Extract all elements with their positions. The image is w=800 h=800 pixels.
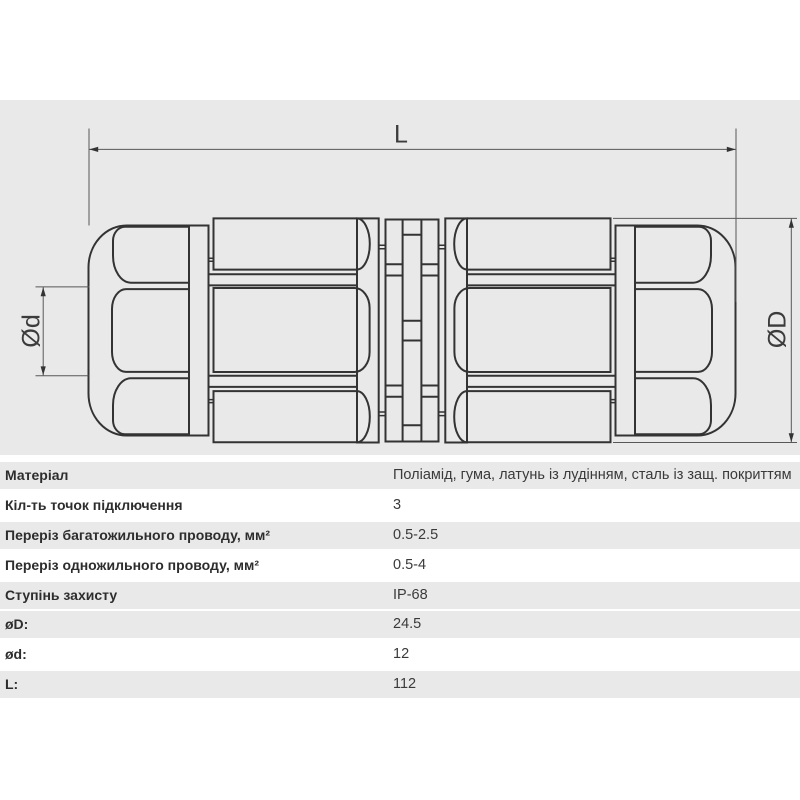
svg-text:L: L [394, 121, 408, 149]
svg-text:ØD: ØD [764, 311, 792, 349]
svg-text:Ød: Ød [17, 314, 45, 347]
